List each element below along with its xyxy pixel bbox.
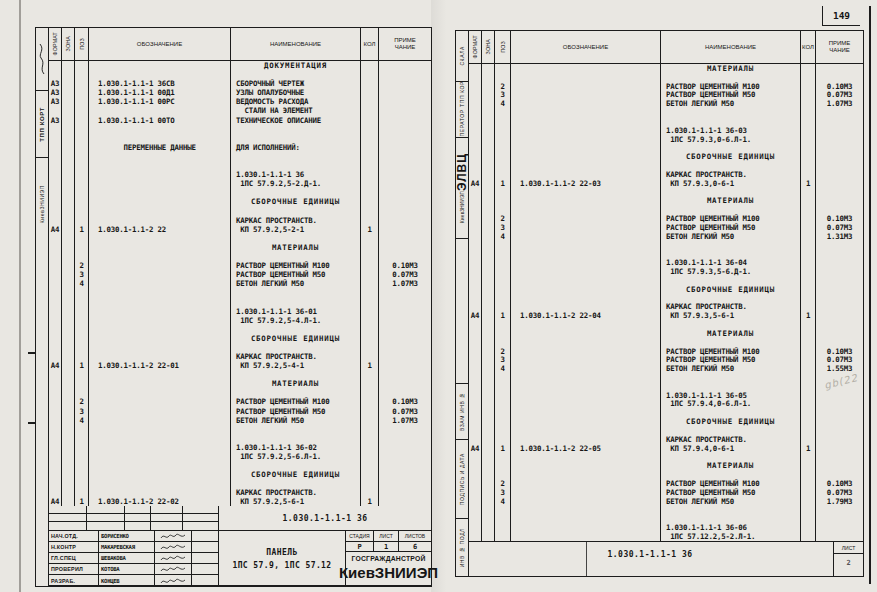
cell-d (511, 320, 661, 329)
spec-line: МАТЕРИАЛЫ (49, 379, 431, 388)
cell-p (495, 514, 511, 523)
cell-p (495, 382, 511, 391)
cell-d: 1.030.1-1.1-2 22-04 (511, 311, 661, 320)
cell-d (89, 216, 231, 225)
cell-z (482, 90, 495, 99)
col-note-header: ПРИМЕЧАНИЕ (379, 28, 431, 60)
spec-line: А411.030.1-1.1-2 22-04 КП 57.9.3,5-6-11 (469, 311, 863, 320)
cell-f (469, 258, 482, 267)
cell-p: 2 (495, 82, 511, 91)
cell-d (511, 408, 661, 417)
right-footer-band: 1.030.1-1.1-1 36 ЛИСТ 2 (469, 541, 863, 576)
cell-n: СБОРОЧНЫЕ ЕДИНИЦЫ (661, 417, 801, 426)
spec-line (49, 152, 431, 161)
cell-z (62, 397, 75, 406)
cell-z (482, 444, 495, 453)
cell-p (495, 64, 511, 73)
spec-line: А411.030.1-1.1-2 22-03 КП 57.9.3,0-6-11 (469, 179, 863, 188)
cell-z (482, 514, 495, 523)
cell-n (231, 343, 361, 352)
date-cell (192, 553, 219, 563)
cell-r (379, 234, 431, 243)
cell-n: МАТЕРИАЛЫ (231, 379, 361, 388)
cell-q (361, 234, 379, 243)
spec-line (469, 294, 863, 303)
cell-r (816, 258, 863, 267)
cell-n (231, 388, 361, 397)
cell-r (816, 391, 863, 400)
cell-n: 1ПС 57.9.2,5-2.Д-1. (231, 179, 361, 188)
spec-line: 1.030.1-1.1-1 36-03 (469, 126, 863, 135)
cell-r (379, 216, 431, 225)
cell-z (62, 206, 75, 215)
cell-z (482, 479, 495, 488)
cell-n (661, 452, 801, 461)
spec-line (49, 125, 431, 134)
spec-line: 1ПС 57.9.4,0-6.Л-1. (469, 399, 863, 408)
spec-line: МАТЕРИАЛЫ (49, 243, 431, 252)
cell-p (75, 297, 89, 306)
spec-line: СБОРОЧНЫЕ ЕДИНИЦЫ (469, 417, 863, 426)
cell-z (482, 267, 495, 276)
spec-line: 3РАСТВОР ЦЕМЕНТНЫЙ М500.07М3 (49, 270, 431, 279)
cell-q (801, 108, 816, 117)
cell-n (231, 325, 361, 334)
spec-line: 2РАСТВОР ЦЕМЕНТНЫЙ М1000.10М3 (469, 214, 863, 223)
margin-name-cell: СКАЛА (456, 31, 468, 82)
cell-p (495, 205, 511, 214)
sheet-box-value: 2 (834, 554, 863, 572)
cell-q (801, 258, 816, 267)
cell-n: КП 57.9.4,0-6-1 (661, 444, 801, 453)
cell-n (661, 373, 801, 382)
cell-n: 1ПС 57.9.2,5-6.Л-1. (231, 452, 361, 461)
cell-d (511, 223, 661, 232)
cell-r (379, 479, 431, 488)
cell-z (62, 306, 75, 315)
cell-p (495, 249, 511, 258)
cell-q (361, 134, 379, 143)
cell-q (361, 188, 379, 197)
spec-line (49, 461, 431, 470)
cell-z (62, 270, 75, 279)
cell-n (661, 276, 801, 285)
role-label: ГЛ.СПЕЦ (49, 553, 99, 563)
spec-line: А411.030.1-1.1-2 22-02 КП 57.9.2,5-6-11 (49, 497, 431, 506)
cell-n (231, 125, 361, 134)
cell-q (361, 161, 379, 170)
cell-n: 1ПС 57.9.3,5-6.Д-1. (661, 267, 801, 276)
person-name: КОТОВА (99, 564, 155, 574)
cell-f (49, 306, 62, 315)
spec-line (49, 134, 431, 143)
cell-z (482, 214, 495, 223)
cell-d (89, 479, 231, 488)
cell-p (495, 461, 511, 470)
spec-line: СБОРОЧНЫЕ ЕДИНИЦЫ (49, 334, 431, 343)
cell-q (361, 316, 379, 325)
col-qty-header: КОЛ (361, 28, 379, 60)
signature-icon (155, 531, 192, 541)
cell-q (801, 143, 816, 152)
cell-z (482, 143, 495, 152)
cell-n: РАСТВОР ЦЕМЕНТНЫЙ М50 (231, 270, 361, 279)
cell-r (816, 276, 863, 285)
cell-z (482, 417, 495, 426)
cell-d (511, 170, 661, 179)
cell-n: БЕТОН ЛЕГКИЙ М50 (661, 99, 801, 108)
spec-line (469, 470, 863, 479)
cell-n (661, 470, 801, 479)
cell-d (89, 161, 231, 170)
cell-z (482, 179, 495, 188)
cell-p (495, 505, 511, 514)
cell-d (89, 261, 231, 270)
cell-f: А3 (49, 88, 62, 97)
cell-q (361, 243, 379, 252)
sheet-right: СКАЛА ОПЕРАТОР ТПП КОРТ КиевЗНИИЭП ЭЛВЦ … (455, 30, 864, 577)
margin-operator-label: ОПЕРАТОР ТПП КОРТ (459, 82, 465, 138)
cell-f (49, 152, 62, 161)
cell-r (379, 252, 431, 261)
cell-f: А3 (49, 116, 62, 125)
cell-r (816, 152, 863, 161)
cell-f (469, 196, 482, 205)
cell-p (495, 523, 511, 532)
cell-d (89, 206, 231, 215)
cell-q (361, 216, 379, 225)
spec-body-right: МАТЕРИАЛЫ2РАСТВОР ЦЕМЕНТНЫЙ М1000.10М33Р… (469, 64, 863, 541)
role-label: ПРОВЕРИЛ (49, 564, 99, 574)
spec-line (49, 434, 431, 443)
cell-q (801, 64, 816, 73)
cell-r: 0.10М3 (816, 347, 863, 356)
cell-n: 1.030.1-1.1-1 36-06 (661, 523, 801, 532)
cell-z (62, 434, 75, 443)
cell-q (361, 279, 379, 288)
cell-r (379, 206, 431, 215)
cell-z (482, 258, 495, 267)
spec-line: 1.030.1-1.1-1 36-05 (469, 391, 863, 400)
cell-z (62, 88, 75, 97)
cell-z (482, 532, 495, 541)
page-number: 149 (822, 6, 860, 26)
cell-r (816, 329, 863, 338)
cell-d (89, 106, 231, 115)
cell-p (75, 479, 89, 488)
cell-d (511, 426, 661, 435)
cell-r (816, 161, 863, 170)
cell-f (49, 488, 62, 497)
cell-r (379, 197, 431, 206)
cell-z (62, 97, 75, 106)
cell-d (511, 143, 661, 152)
cell-n (661, 408, 801, 417)
cell-d (89, 243, 231, 252)
cell-n: 1.030.1-1.1-1 36-05 (661, 391, 801, 400)
cell-z (62, 352, 75, 361)
cell-d (511, 338, 661, 347)
cell-d (511, 126, 661, 135)
cell-r (379, 488, 431, 497)
spec-line: КАРКАС ПРОСТРАНСТВ. (469, 302, 863, 311)
cell-q (361, 407, 379, 416)
cell-z (62, 70, 75, 79)
cell-f (49, 352, 62, 361)
cell-n: РАСТВОР ЦЕМЕНТНЫЙ М50 (661, 488, 801, 497)
spec-line (469, 73, 863, 82)
cell-f (49, 252, 62, 261)
cell-r (816, 435, 863, 444)
cell-d (89, 416, 231, 425)
cell-q (361, 125, 379, 134)
cell-f (469, 505, 482, 514)
cell-p: 3 (495, 488, 511, 497)
spec-line (49, 288, 431, 297)
cell-f (469, 532, 482, 541)
cell-p: 2 (495, 347, 511, 356)
cell-q (801, 90, 816, 99)
cell-p (495, 426, 511, 435)
cell-z (482, 329, 495, 338)
cell-p (75, 461, 89, 470)
cell-p (495, 320, 511, 329)
cell-f (469, 435, 482, 444)
cell-z (62, 134, 75, 143)
spec-line: КАРКАС ПРОСТРАНСТВ. (49, 216, 431, 225)
cell-r (379, 379, 431, 388)
cell-r (816, 302, 863, 311)
col-note-header: ПРИМЕЧАНИЕ (816, 31, 863, 63)
cell-r (816, 267, 863, 276)
cell-d (511, 497, 661, 506)
cell-p (495, 126, 511, 135)
cell-r (816, 143, 863, 152)
cell-f (49, 297, 62, 306)
cell-q (801, 479, 816, 488)
spec-line: 4БЕТОН ЛЕГКИЙ М501.55М3 (469, 364, 863, 373)
cell-z (62, 334, 75, 343)
cell-q (801, 126, 816, 135)
spec-line (49, 370, 431, 379)
cell-z (482, 320, 495, 329)
cell-q (801, 470, 816, 479)
cell-n: СТАЛИ НА ЭЛЕМЕНТ (231, 106, 361, 115)
cell-r (379, 297, 431, 306)
cell-p: 3 (495, 355, 511, 364)
spec-line (469, 320, 863, 329)
cell-f (49, 379, 62, 388)
cell-p: 2 (495, 479, 511, 488)
spec-line: МАТЕРИАЛЫ (469, 329, 863, 338)
cell-p (75, 234, 89, 243)
cell-r (816, 294, 863, 303)
cell-d (511, 152, 661, 161)
cell-p (495, 135, 511, 144)
cell-p (75, 352, 89, 361)
cell-r (379, 134, 431, 143)
cell-r: 0.07М3 (816, 90, 863, 99)
cell-q (801, 82, 816, 91)
cell-n (661, 338, 801, 347)
cell-f (469, 399, 482, 408)
cell-n (661, 320, 801, 329)
cell-r: 1.07М3 (379, 416, 431, 425)
cell-r (816, 205, 863, 214)
cell-d (89, 443, 231, 452)
cell-r (379, 388, 431, 397)
cell-z (482, 382, 495, 391)
cell-z (62, 79, 75, 88)
cell-r: 1.79М3 (816, 497, 863, 506)
cell-p: 4 (75, 279, 89, 288)
col-pos-header: ПОЗ (75, 28, 89, 60)
cell-p (495, 285, 511, 294)
cell-q (361, 106, 379, 115)
cell-n: 1.030.1-1.1-1 36-04 (661, 258, 801, 267)
cell-r (379, 225, 431, 234)
spec-line (469, 188, 863, 197)
cell-n: КАРКАС ПРОСТРАНСТВ. (661, 302, 801, 311)
person-name: ШЕВАКОВА (99, 553, 155, 563)
spec-line: А31.030.1-1.1-1 36СВСБОРОЧНЫЙ ЧЕРТЕЖ (49, 79, 431, 88)
cell-d (511, 364, 661, 373)
spec-line (469, 452, 863, 461)
cell-n (231, 188, 361, 197)
cell-n: СБОРОЧНЫЕ ЕДИНИЦЫ (231, 470, 361, 479)
cell-n: МАТЕРИАЛЫ (661, 196, 801, 205)
margin-stamp: ПОДПИСЬ И ДАТА (456, 439, 468, 518)
cell-z (482, 170, 495, 179)
cell-n (661, 241, 801, 250)
spec-header: ФОРМАТ ЗОНА ПОЗ ОБОЗНАЧЕНИЕ НАИМЕНОВАНИЕ… (49, 28, 431, 61)
cell-p (495, 258, 511, 267)
spec-line (469, 205, 863, 214)
cell-d (511, 276, 661, 285)
cell-p (495, 452, 511, 461)
cell-q (361, 352, 379, 361)
cell-p (75, 306, 89, 315)
cell-p (75, 343, 89, 352)
cell-f: А4 (49, 361, 62, 370)
cell-q (801, 382, 816, 391)
spec-line (49, 188, 431, 197)
cell-q (361, 416, 379, 425)
cell-p (75, 370, 89, 379)
spec-line (469, 426, 863, 435)
cell-d: ПЕРЕМЕННЫЕ ДАННЫЕ (89, 143, 231, 152)
spec-line (469, 505, 863, 514)
cell-r (379, 106, 431, 115)
cell-z (62, 370, 75, 379)
cell-f (469, 73, 482, 82)
cell-q (801, 338, 816, 347)
cell-r (379, 325, 431, 334)
cell-n: РАСТВОР ЦЕМЕНТНЫЙ М50 (231, 407, 361, 416)
date-cell (192, 564, 219, 574)
cell-z (482, 399, 495, 408)
cell-n (231, 70, 361, 79)
sheet-left: ТПП КОРТ КиевЗНИИЭП ФОРМАТ ЗОНА ПОЗ ОБОЗ… (35, 27, 432, 587)
cell-d (89, 279, 231, 288)
cell-r: 0.07М3 (816, 223, 863, 232)
spec-line: А411.030.1-1.1-2 22-05 КП 57.9.4,0-6-11 (469, 444, 863, 453)
cell-f (49, 397, 62, 406)
cell-p (495, 391, 511, 400)
cell-f (469, 523, 482, 532)
cell-r (816, 320, 863, 329)
cell-z (482, 196, 495, 205)
cell-z (62, 188, 75, 197)
cell-f (469, 320, 482, 329)
cell-f (49, 170, 62, 179)
cell-q (801, 196, 816, 205)
spec-line: 1.030.1-1.1-1 36-04 (469, 258, 863, 267)
cell-d (511, 355, 661, 364)
cell-n (231, 206, 361, 215)
evc-label: КиевЗНИИЭП ЭЛВЦ (456, 153, 468, 223)
cell-d (511, 488, 661, 497)
cell-p (75, 79, 89, 88)
cell-d (89, 379, 231, 388)
cell-z (62, 161, 75, 170)
cell-d (89, 452, 231, 461)
cell-z (482, 302, 495, 311)
margin-org-cell: КиевЗНИИЭП (36, 158, 48, 250)
cell-p: 3 (75, 407, 89, 416)
cell-n: 1ПС 57.9.2,5-4.Л-1. (231, 316, 361, 325)
cell-n (231, 161, 361, 170)
cell-n: МАТЕРИАЛЫ (231, 243, 361, 252)
spec-header: ФОРМАТ ЗОНА ПОЗ ОБОЗНАЧЕНИЕ НАИМЕНОВАНИЕ… (469, 31, 863, 64)
col-qty-header: КОЛ (801, 31, 816, 63)
cell-f (49, 343, 62, 352)
cell-q (361, 479, 379, 488)
cell-q: 1 (801, 444, 816, 453)
cell-q (801, 399, 816, 408)
spec-line: КАРКАС ПРОСТРАНСТВ. (49, 488, 431, 497)
document-number: 1.030.1-1.1-1 36 (219, 506, 431, 530)
spec-line: 1ПС 57.9.2,5-4.Л-1. (49, 316, 431, 325)
cell-n: РАСТВОР ЦЕМЕНТНЫЙ М100 (661, 214, 801, 223)
cell-z (482, 188, 495, 197)
cell-r (379, 343, 431, 352)
cell-f (469, 426, 482, 435)
cell-n (661, 143, 801, 152)
cell-r (379, 179, 431, 188)
cell-n: РАСТВОР ЦЕМЕНТНЫЙ М100 (661, 347, 801, 356)
spec-line: 1ПС 57.9.3,5-6.Д-1. (469, 267, 863, 276)
cell-d (511, 90, 661, 99)
document-number: 1.030.1-1.1-1 36 (469, 550, 831, 559)
cell-z (62, 452, 75, 461)
cell-f (469, 232, 482, 241)
cell-z (482, 488, 495, 497)
cell-p (75, 206, 89, 215)
cell-z (482, 249, 495, 258)
cell-z (482, 161, 495, 170)
spec-line (469, 514, 863, 523)
cell-n: БЕТОН ЛЕГКИЙ М50 (661, 232, 801, 241)
spec-line: А31.030.1-1.1-1 00ТОТЕХНИЧЕСКОЕ ОПИСАНИЕ (49, 116, 431, 125)
spec-line: СТАЛИ НА ЭЛЕМЕНТ (49, 106, 431, 115)
spec-line: 3РАСТВОР ЦЕМЕНТНЫЙ М500.07М3 (469, 223, 863, 232)
cell-d: 1.030.1-1.1-2 22-02 (89, 497, 231, 506)
cell-p (75, 334, 89, 343)
cell-f (469, 117, 482, 126)
cell-q (801, 214, 816, 223)
cell-d (511, 329, 661, 338)
